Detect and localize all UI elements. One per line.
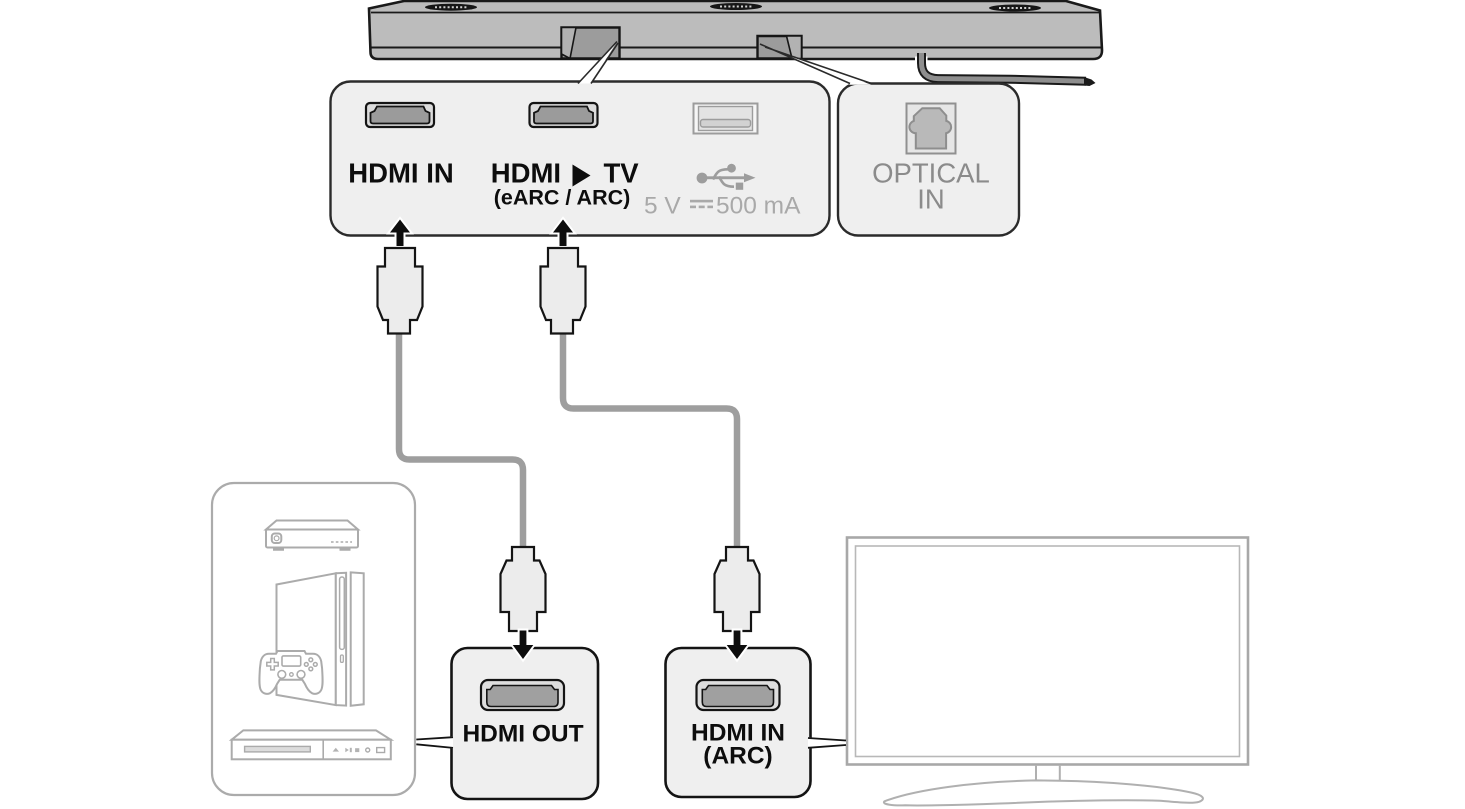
svg-text:5 V: 5 V (644, 193, 681, 220)
svg-text:(eARC / ARC): (eARC / ARC) (494, 186, 631, 210)
svg-text:HDMI IN: HDMI IN (348, 158, 453, 189)
svg-text:500 mA: 500 mA (716, 193, 801, 220)
svg-text:TV: TV (604, 158, 640, 189)
svg-text:HDMI: HDMI (491, 158, 561, 189)
svg-text:(ARC): (ARC) (703, 743, 772, 770)
svg-text:IN: IN (917, 184, 945, 215)
svg-text:HDMI OUT: HDMI OUT (462, 721, 583, 748)
